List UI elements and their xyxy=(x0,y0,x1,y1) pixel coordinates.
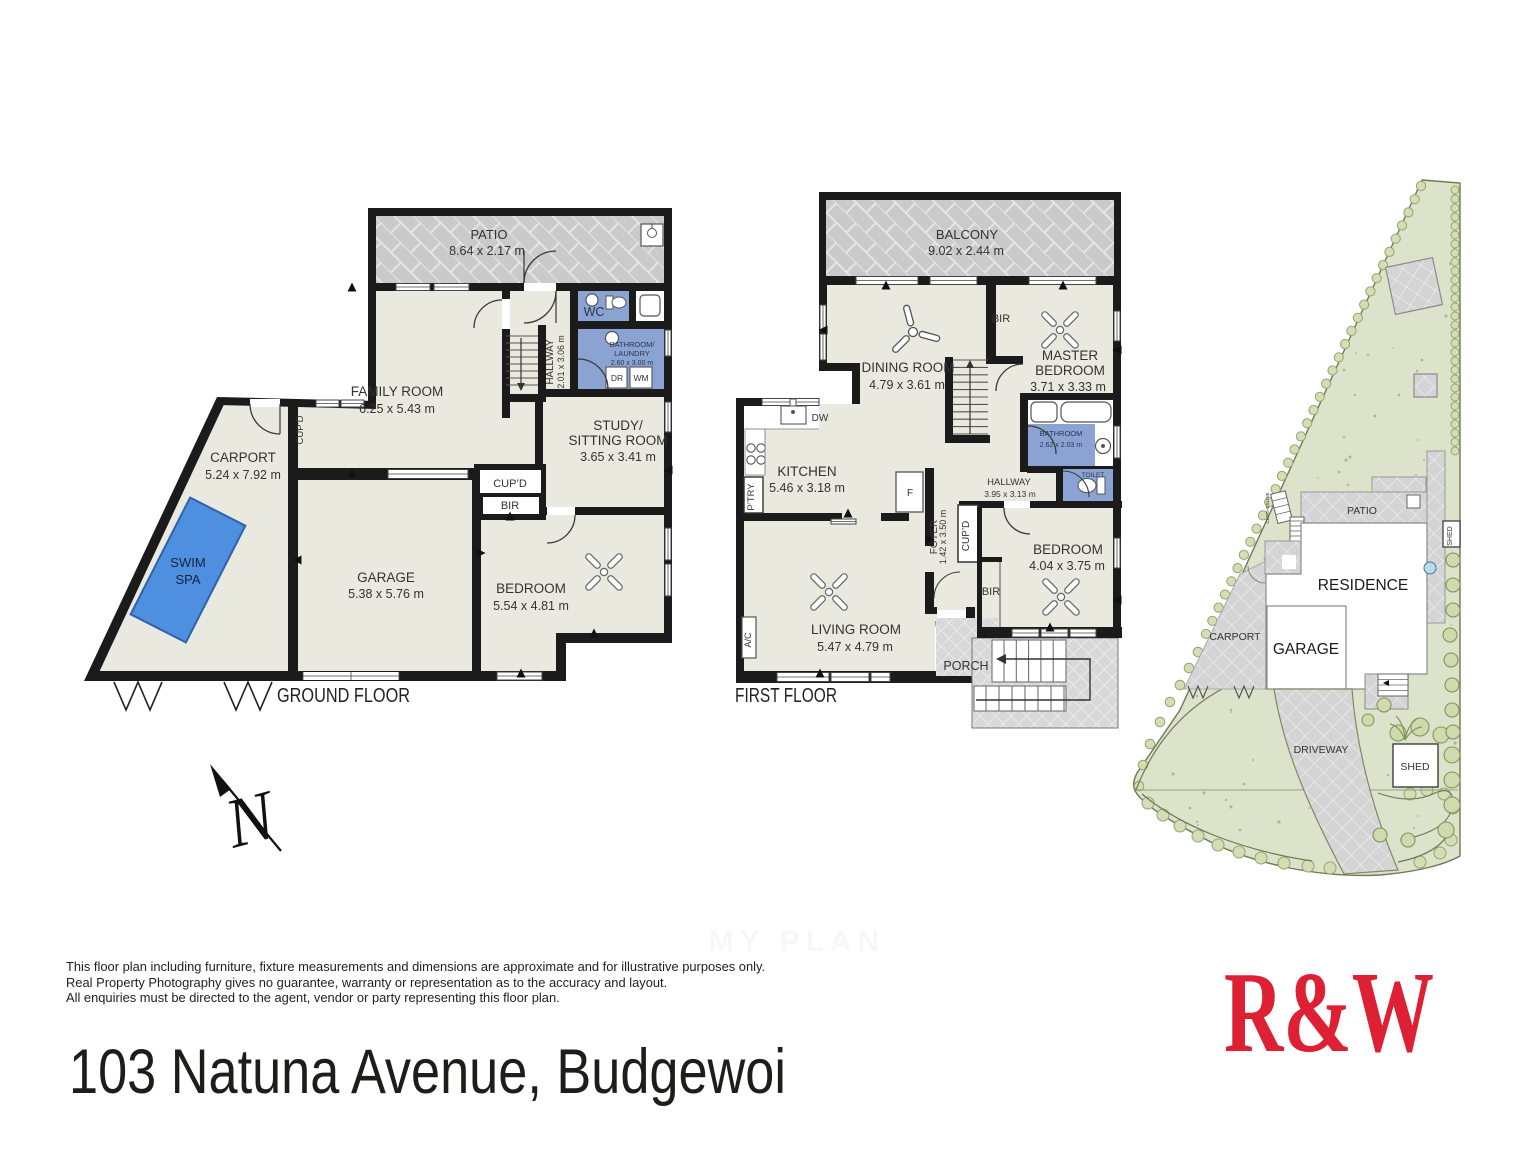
svg-text:Real Property Photography give: Real Property Photography gives no guara… xyxy=(66,975,667,990)
svg-text:KITCHEN: KITCHEN xyxy=(777,464,836,479)
svg-text:8.64 x 2.17 m: 8.64 x 2.17 m xyxy=(449,244,525,258)
svg-text:HALLWAY: HALLWAY xyxy=(545,339,556,384)
svg-text:5.47 x 4.79 m: 5.47 x 4.79 m xyxy=(817,640,893,654)
svg-text:WM: WM xyxy=(633,373,648,383)
svg-text:BIR: BIR xyxy=(992,313,1010,325)
svg-text:PATIO: PATIO xyxy=(470,227,507,242)
svg-text:2.62 x 2.03 m: 2.62 x 2.03 m xyxy=(1040,442,1083,449)
svg-text:LAUNDRY: LAUNDRY xyxy=(614,349,650,358)
svg-text:CLOTHESLINE: CLOTHESLINE xyxy=(1265,492,1270,523)
svg-text:GROUND FLOOR: GROUND FLOOR xyxy=(277,685,410,707)
svg-text:This floor plan including furn: This floor plan including furniture, fix… xyxy=(66,959,765,974)
svg-text:BEDROOM: BEDROOM xyxy=(1033,542,1103,557)
svg-text:2.60 x 3.00 m: 2.60 x 3.00 m xyxy=(611,360,654,367)
svg-text:STUDY/: STUDY/ xyxy=(593,418,643,433)
svg-text:5.54 x 4.81 m: 5.54 x 4.81 m xyxy=(493,599,569,613)
svg-text:5.38 x 5.76 m: 5.38 x 5.76 m xyxy=(348,587,424,601)
svg-text:DINING ROOM: DINING ROOM xyxy=(862,360,955,375)
svg-text:GARAGE: GARAGE xyxy=(1273,641,1339,658)
svg-text:BEDROOM: BEDROOM xyxy=(496,581,566,596)
svg-text:4.79 x 3.61 m: 4.79 x 3.61 m xyxy=(869,378,945,392)
svg-text:HALLWAY: HALLWAY xyxy=(987,477,1031,488)
svg-text:BEDROOM: BEDROOM xyxy=(1035,363,1105,378)
svg-text:DW: DW xyxy=(812,413,829,424)
svg-text:5.24 x 7.92 m: 5.24 x 7.92 m xyxy=(205,468,281,482)
svg-text:SPA: SPA xyxy=(175,572,200,587)
svg-text:103 Natuna Avenue, Budgewoi: 103 Natuna Avenue, Budgewoi xyxy=(69,1037,786,1107)
svg-text:FAMILY ROOM: FAMILY ROOM xyxy=(351,384,444,399)
svg-text:CARPORT: CARPORT xyxy=(1209,631,1261,643)
svg-text:CUP’D: CUP’D xyxy=(295,415,306,444)
svg-text:3.71 x 3.33 m: 3.71 x 3.33 m xyxy=(1030,380,1106,394)
svg-text:BATHROOM/: BATHROOM/ xyxy=(610,340,656,349)
svg-text:PATIO: PATIO xyxy=(1347,505,1377,517)
svg-text:GARAGE: GARAGE xyxy=(357,570,415,585)
svg-text:DR: DR xyxy=(611,373,623,383)
svg-text:MY PLAN: MY PLAN xyxy=(709,925,885,958)
svg-text:P’TRY: P’TRY xyxy=(746,483,757,511)
svg-text:CUP’D: CUP’D xyxy=(493,478,527,490)
svg-text:4.04 x 3.75 m: 4.04 x 3.75 m xyxy=(1029,559,1105,573)
svg-text:SHED: SHED xyxy=(1447,526,1454,545)
svg-text:TOILET: TOILET xyxy=(1082,472,1105,479)
svg-text:SHED: SHED xyxy=(1400,761,1430,773)
svg-text:SWIM: SWIM xyxy=(170,555,205,570)
svg-text:F: F xyxy=(907,488,913,499)
svg-text:FIRST FLOOR: FIRST FLOOR xyxy=(735,685,837,707)
svg-text:RESIDENCE: RESIDENCE xyxy=(1318,577,1408,594)
svg-text:6.25 x 5.43 m: 6.25 x 5.43 m xyxy=(359,402,435,416)
svg-text:LIVING ROOM: LIVING ROOM xyxy=(811,622,901,637)
svg-text:DRIVEWAY: DRIVEWAY xyxy=(1294,744,1349,756)
svg-text:CUP’D: CUP’D xyxy=(961,521,972,552)
svg-text:9.02 x 2.44 m: 9.02 x 2.44 m xyxy=(928,244,1004,258)
svg-text:5.46 x 3.18 m: 5.46 x 3.18 m xyxy=(769,481,845,495)
svg-text:CARPORT: CARPORT xyxy=(210,450,276,465)
svg-text:BATHROOM: BATHROOM xyxy=(1040,429,1083,438)
svg-text:2.01 x 3.06 m: 2.01 x 3.06 m xyxy=(556,335,566,388)
svg-text:SITTING ROOM: SITTING ROOM xyxy=(569,433,668,448)
svg-text:A/C: A/C xyxy=(743,632,753,648)
svg-text:1.42 x 3.50 m: 1.42 x 3.50 m xyxy=(938,510,948,565)
svg-text:MASTER: MASTER xyxy=(1042,348,1099,363)
svg-text:All enquiries must be directed: All enquiries must be directed to the ag… xyxy=(66,990,560,1005)
svg-text:PORCH: PORCH xyxy=(943,659,988,673)
svg-text:BALCONY: BALCONY xyxy=(936,227,998,242)
svg-text:3.65 x 3.41 m: 3.65 x 3.41 m xyxy=(580,450,656,464)
svg-text:BIR: BIR xyxy=(501,500,519,512)
svg-text:WC: WC xyxy=(584,305,605,319)
svg-text:BIR: BIR xyxy=(982,586,1000,598)
svg-text:3.95 x 3.13 m: 3.95 x 3.13 m xyxy=(984,489,1036,499)
svg-text:R&W: R&W xyxy=(1224,949,1434,1077)
